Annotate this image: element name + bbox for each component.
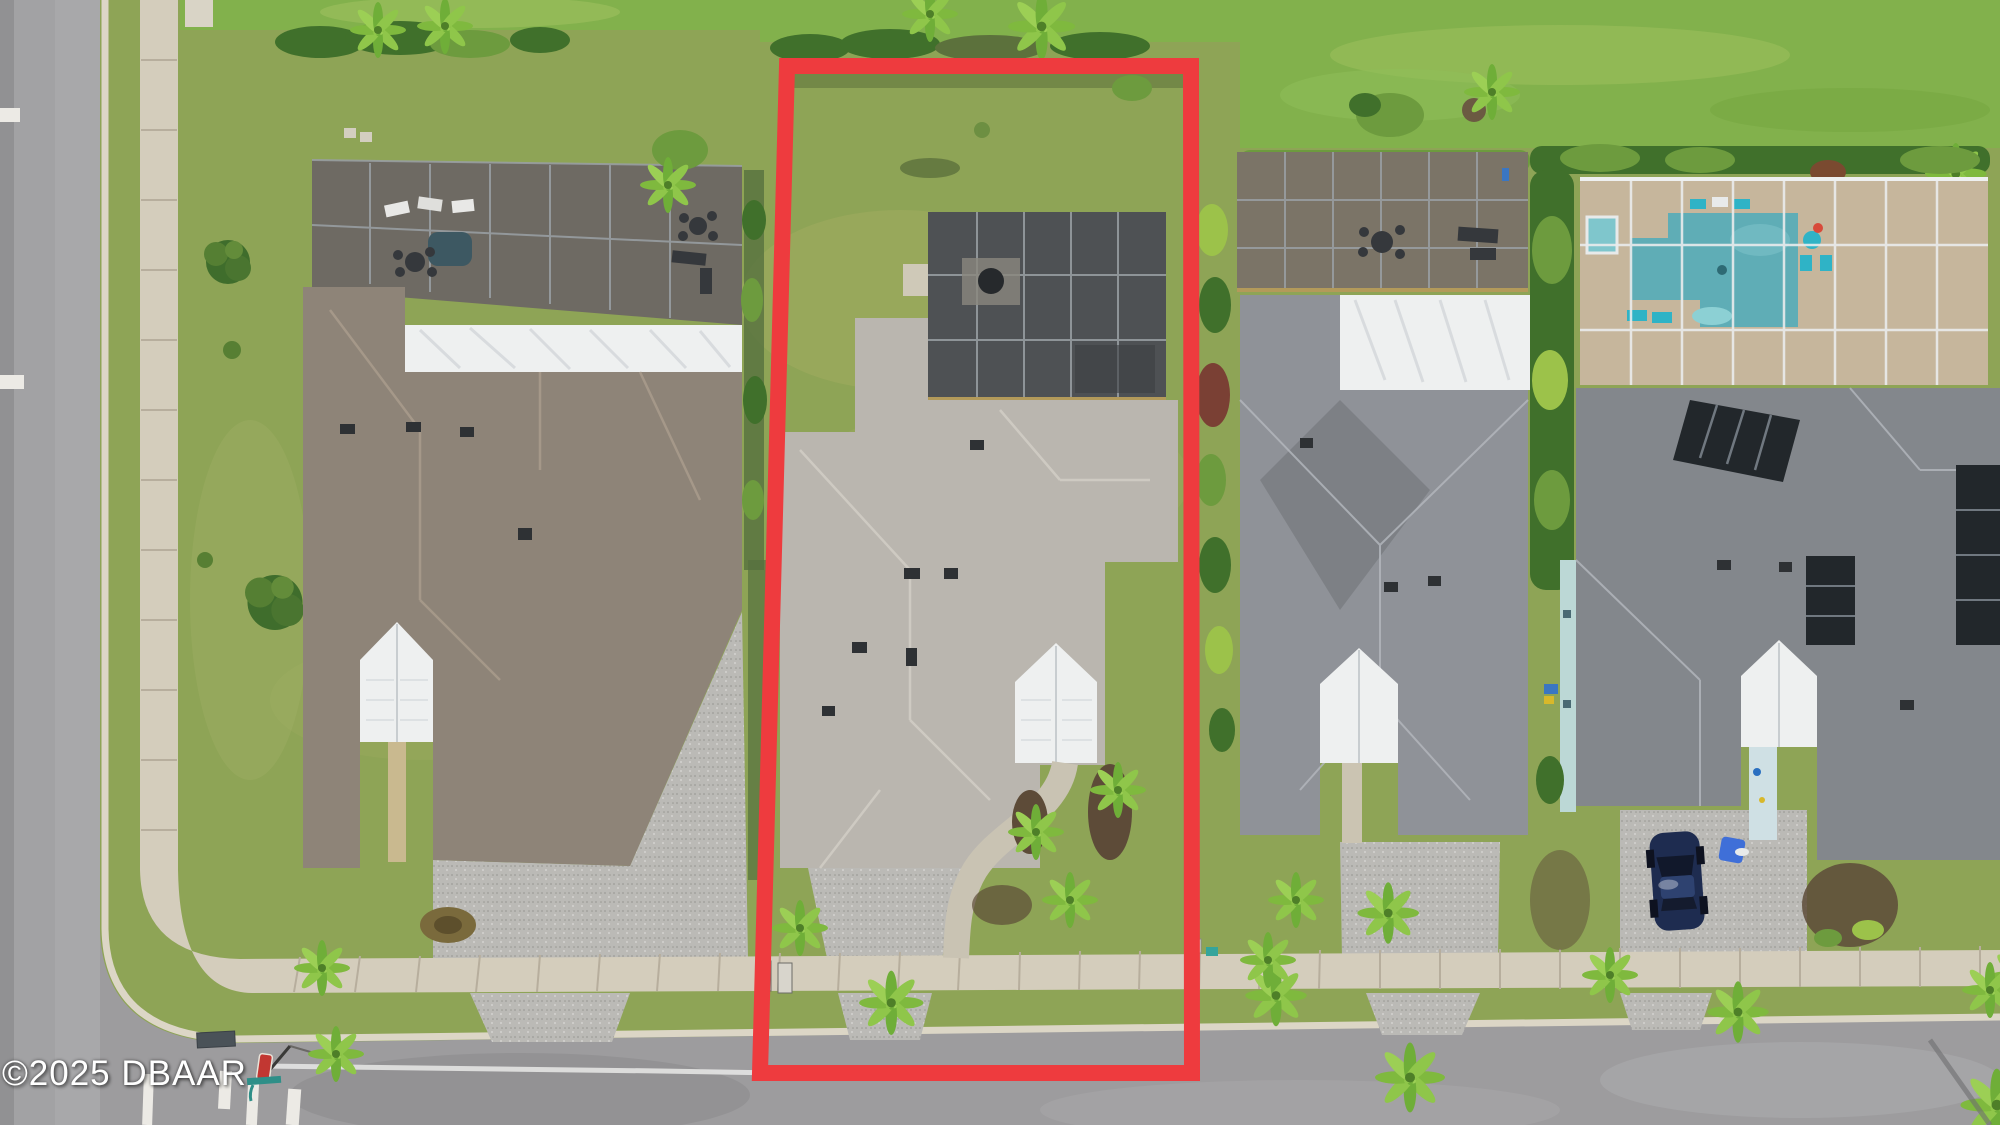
house3-driveway — [1340, 842, 1500, 958]
watermark: ©2025 DBAAR — [2, 1054, 247, 1094]
aerial-scene — [0, 0, 2000, 1125]
house3-front-walk — [1342, 763, 1362, 843]
corner-palm — [294, 940, 350, 996]
aerial-photo: ©2025 DBAAR — [0, 0, 2000, 1125]
patio-table — [405, 252, 425, 272]
patio-table — [1803, 231, 1821, 249]
crosswalk-stripe — [286, 1089, 301, 1125]
subject-driveway — [808, 868, 965, 958]
house4-driveway — [1620, 810, 1807, 958]
lounger — [451, 199, 474, 213]
paver-square — [185, 0, 213, 27]
weed-patch — [900, 158, 960, 178]
house3-white-roof-band — [1340, 295, 1530, 390]
spa — [428, 232, 472, 266]
spa — [1587, 217, 1617, 253]
pool-equipment — [1544, 684, 1558, 694]
pool-float — [1717, 265, 1727, 275]
windshield — [1656, 855, 1695, 878]
maroon-shrub — [1196, 363, 1230, 427]
utility-box — [778, 963, 792, 993]
solar-panel — [1806, 556, 1855, 645]
house1-front-walk — [388, 742, 406, 862]
utility-slab — [197, 1031, 236, 1048]
person — [1502, 168, 1509, 181]
irrigation-box — [1206, 947, 1218, 956]
house3 — [1237, 152, 1530, 843]
house4-porch — [1749, 747, 1777, 840]
driveway-palm — [859, 971, 923, 1035]
covered-spa — [978, 268, 1004, 294]
patio-table — [689, 217, 707, 235]
house3-pool-enclosure — [1237, 152, 1528, 290]
